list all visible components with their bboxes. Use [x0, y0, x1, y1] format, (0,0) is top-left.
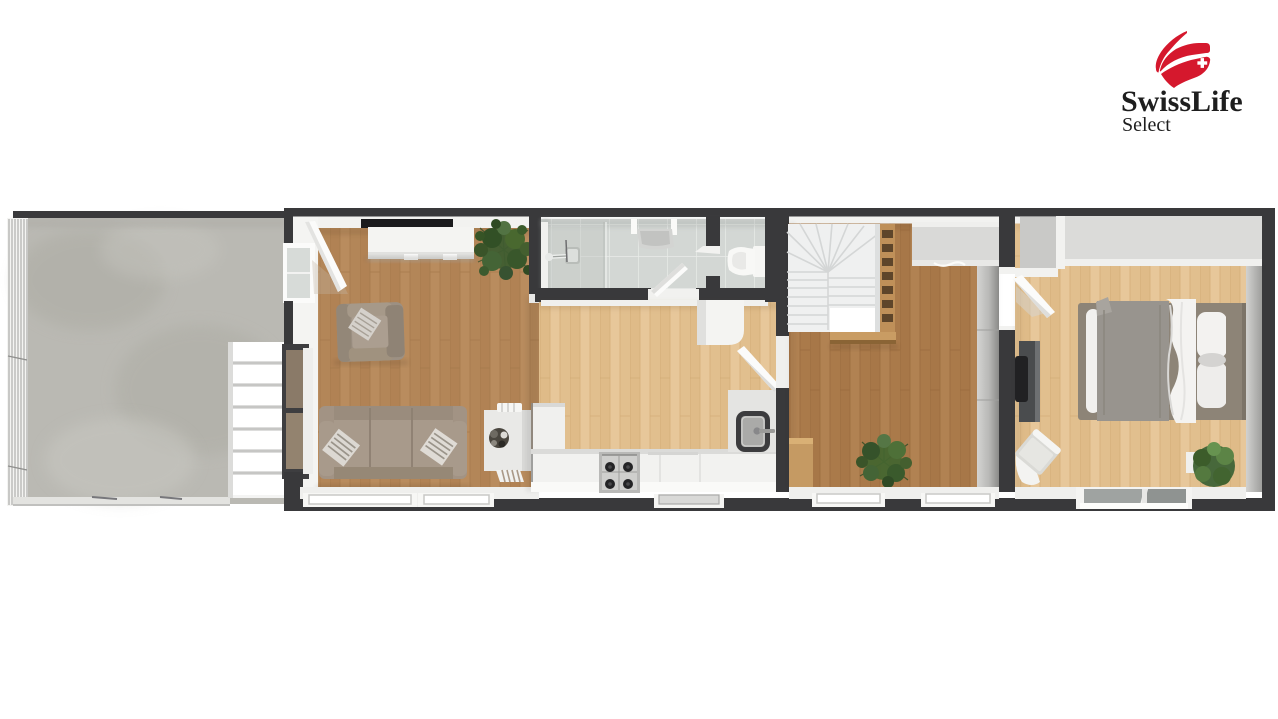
svg-text:Select: Select	[1122, 114, 1171, 136]
